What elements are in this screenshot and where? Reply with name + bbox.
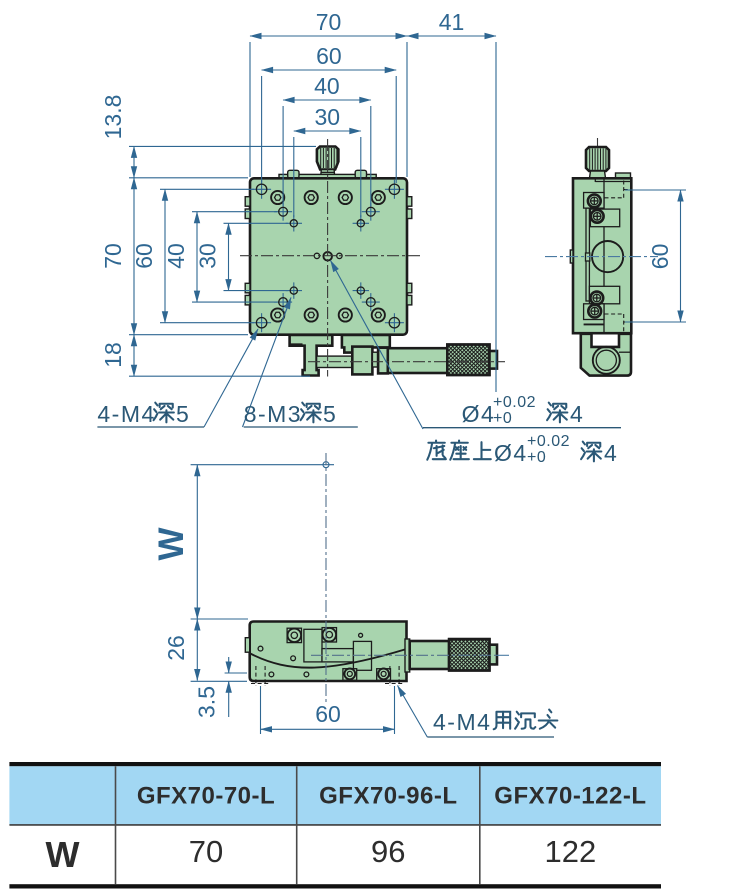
svg-text:+0: +0 <box>493 410 512 427</box>
svg-text:122: 122 <box>545 834 597 869</box>
svg-text:60: 60 <box>316 43 342 69</box>
svg-text:4: 4 <box>604 440 618 466</box>
svg-text:13.8: 13.8 <box>100 95 126 140</box>
svg-text:GFX70-70-L: GFX70-70-L <box>137 783 275 810</box>
svg-text:60: 60 <box>315 701 341 727</box>
svg-text:4: 4 <box>570 401 584 427</box>
svg-text:Ø4: Ø4 <box>462 401 496 427</box>
svg-text:+0: +0 <box>527 449 546 466</box>
svg-text:70: 70 <box>316 9 342 35</box>
svg-text:GFX70-96-L: GFX70-96-L <box>319 783 457 810</box>
svg-text:Ø4: Ø4 <box>494 440 528 466</box>
svg-text:70: 70 <box>189 834 223 869</box>
svg-text:5: 5 <box>176 401 190 427</box>
svg-text:40: 40 <box>163 243 189 269</box>
svg-text:4-M4: 4-M4 <box>97 401 155 427</box>
svg-text:18: 18 <box>100 342 126 368</box>
svg-text:W: W <box>46 834 80 875</box>
svg-text:30: 30 <box>315 104 341 130</box>
svg-text:+0.02: +0.02 <box>493 394 536 411</box>
svg-text:W: W <box>152 527 191 560</box>
svg-text:4-M4: 4-M4 <box>433 709 491 735</box>
svg-text:3.5: 3.5 <box>194 686 220 718</box>
svg-text:5: 5 <box>323 401 337 427</box>
svg-text:26: 26 <box>163 635 189 661</box>
svg-text:30: 30 <box>195 243 221 269</box>
svg-text:96: 96 <box>371 834 405 869</box>
svg-text:+0.02: +0.02 <box>527 433 570 450</box>
svg-text:70: 70 <box>100 243 126 269</box>
svg-text:GFX70-122-L: GFX70-122-L <box>494 783 646 810</box>
svg-text:60: 60 <box>131 243 157 269</box>
svg-text:8-M3: 8-M3 <box>244 401 302 427</box>
svg-text:40: 40 <box>314 73 340 99</box>
svg-text:41: 41 <box>439 9 465 35</box>
